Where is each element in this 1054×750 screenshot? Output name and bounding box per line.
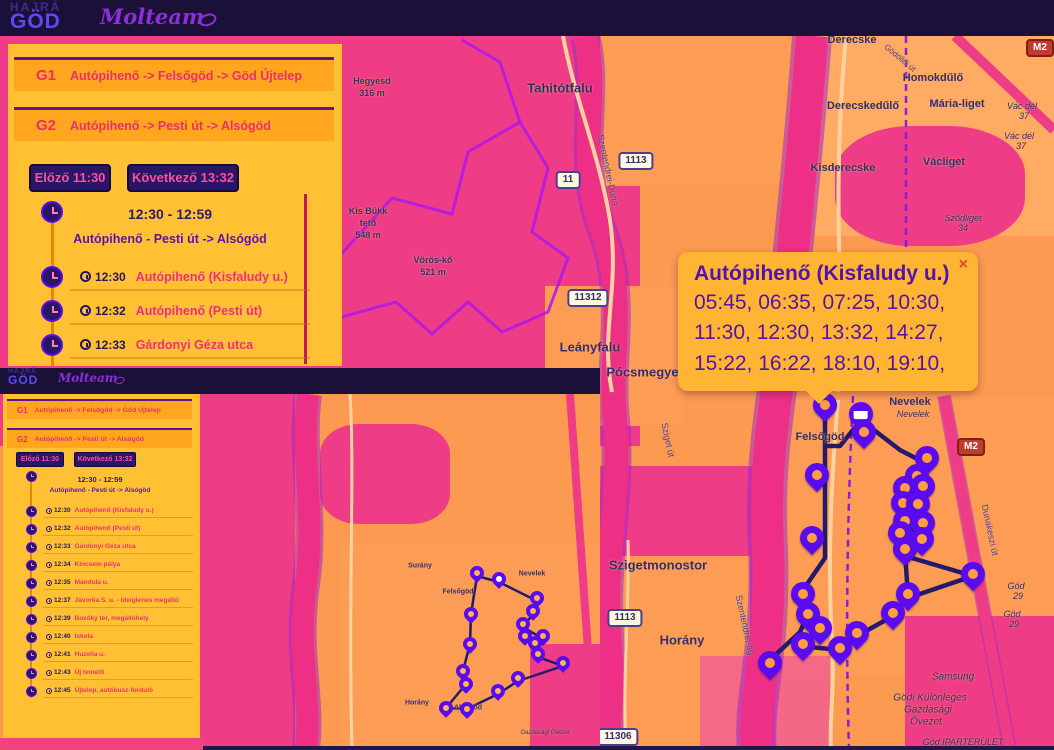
mini-stop-row[interactable]: 12:30 Autópihenő (Kisfaludy u.) <box>43 504 193 518</box>
clock-icon <box>46 526 52 532</box>
exit-label: Göd <box>1003 609 1020 619</box>
mini-stop-row[interactable]: 12:35 Mandula u. <box>43 576 193 590</box>
clock-icon <box>26 632 37 643</box>
clock-icon <box>41 266 63 288</box>
mini-route-card-g1[interactable]: G1 Autópihenő -> Felsőgöd -> Göd Újtelep <box>7 399 192 419</box>
clock-icon <box>26 686 37 697</box>
mini-map[interactable]: Surány Nevelek Felsőgöd Horány Alsógöd G… <box>200 394 600 750</box>
clock-icon <box>46 670 52 676</box>
town-label: Nevelek <box>897 409 930 419</box>
exit-label: Göd <box>1007 581 1024 591</box>
peak-label: Hegyesd <box>353 76 391 86</box>
stop-row[interactable]: 12:32 Autópihenő (Pesti út) <box>70 298 310 325</box>
town-label: Tahitótfalu <box>527 81 592 96</box>
road-shield: 11312 <box>567 289 608 307</box>
town-label: Leányfalu <box>560 340 621 355</box>
peak-elevation: 521 m <box>420 267 446 277</box>
stop-time: 12:35 <box>54 579 71 586</box>
town-label: Václiget <box>923 156 965 168</box>
mini-next-departure-button[interactable]: Következő 13:32 <box>74 452 136 467</box>
exit-number: 37 <box>1016 141 1026 151</box>
bus-icon <box>854 408 868 419</box>
mini-stop-row[interactable]: 12:45 Újtelep, autóbusz-forduló <box>43 684 193 698</box>
stop-name: Bozóky tér, megállóhely <box>75 615 149 622</box>
clock-icon <box>46 616 52 622</box>
mini-stop-row[interactable]: 12:37 Jávorka S. u. - ideiglenes megálló <box>43 594 193 608</box>
peak-label: Kis Bükk <box>349 206 388 216</box>
clock-icon <box>26 542 37 553</box>
logo-text-main: GÖD <box>8 374 38 386</box>
next-departure-button[interactable]: Következő 13:32 <box>127 164 239 192</box>
clock-icon <box>26 650 37 661</box>
clock-icon <box>46 508 52 514</box>
stop-time: 12:32 <box>95 304 126 318</box>
peak-label: Vörös-kő <box>413 255 452 265</box>
town-label: Derecske <box>828 36 877 46</box>
road-shield: 1113 <box>618 152 653 170</box>
mini-hajra-god-logo: HAJRÁ GÖD <box>8 368 38 386</box>
trip-time-range: 12:30 - 12:59 <box>77 475 122 484</box>
mini-molteam-logo: Molteam <box>58 371 124 385</box>
peak-elevation: 316 m <box>359 88 385 98</box>
town-label: Homokdűlő <box>903 72 964 84</box>
top-bar: HAJRÁ GÖD Molteam <box>0 0 1054 36</box>
mini-stop-row[interactable]: 12:41 Huzella u. <box>43 648 193 662</box>
mini-top-bar: HAJRÁ GÖD Molteam <box>0 368 600 394</box>
stop-name: Autópihenő (Pesti út) <box>136 304 262 318</box>
trip-time-range: 12:30 - 12:59 <box>128 206 212 222</box>
town-label: Szigetmonostor <box>609 558 707 573</box>
route-code: G1 <box>17 406 28 415</box>
town-label: Derecskedűlő <box>827 100 899 112</box>
stop-time: 12:41 <box>54 651 71 658</box>
mini-stop-row[interactable]: 12:33 Gárdonyi Géza utca <box>43 540 193 554</box>
stop-time: 12:39 <box>54 615 71 622</box>
town-label: Horány <box>405 700 429 707</box>
clock-icon <box>41 300 63 322</box>
stop-name: Új temető <box>75 669 105 676</box>
exit-label: Vác dél <box>1004 131 1034 141</box>
mini-route-sidebar: G1 Autópihenő -> Felsőgöd -> Göd Újtelep… <box>3 394 200 738</box>
stop-time: 12:33 <box>54 543 71 550</box>
clock-icon <box>26 506 37 517</box>
exit-label: Vác dél <box>1007 101 1037 111</box>
clock-icon <box>26 578 37 589</box>
previous-departure-button[interactable]: Előző 11:30 <box>29 164 111 192</box>
clock-icon <box>80 339 91 350</box>
motorway-shield: M2 <box>957 438 985 456</box>
town-label: Felsőgöd <box>442 589 473 596</box>
clock-icon <box>26 471 37 482</box>
stop-time: 12:43 <box>54 669 71 676</box>
stop-row[interactable]: 12:33 Gárdonyi Géza utca <box>70 332 310 359</box>
stop-time: 12:30 <box>54 507 71 514</box>
clock-icon <box>26 524 37 535</box>
clock-icon <box>46 598 52 604</box>
clock-icon <box>26 596 37 607</box>
stop-name: Kincsem pálya <box>75 561 121 568</box>
peak-elevation: 548 m <box>355 230 381 240</box>
screenshot-bottom-edge <box>203 746 1054 750</box>
popup-title: Autópihenő (Kisfaludy u.) <box>694 262 962 286</box>
brand-text: Molteam <box>58 371 118 385</box>
stop-name: Jávorka S. u. - ideiglenes megálló <box>75 597 179 604</box>
clock-icon <box>46 580 52 586</box>
town-label: Pócsmegyer <box>606 365 683 380</box>
mini-stop-row[interactable]: 12:40 Iskola <box>43 630 193 644</box>
town-label: Felsőgöd <box>796 431 845 443</box>
brand-text: Molteam <box>100 4 204 29</box>
mini-route-card-g2[interactable]: G2 Autópihenő -> Pesti út -> Alsógöd <box>7 428 192 448</box>
clock-icon <box>46 544 52 550</box>
stop-row[interactable]: 12:30 Autópihenő (Kisfaludy u.) <box>70 264 310 291</box>
stop-time: 12:32 <box>54 525 71 532</box>
stop-name: Autópihenő (Pesti út) <box>75 525 141 532</box>
stop-time: 12:45 <box>54 687 71 694</box>
stop-name: Gárdonyi Géza utca <box>136 338 253 352</box>
mini-stop-row[interactable]: 12:43 Új temető <box>43 666 193 680</box>
area-label: Samsung <box>932 672 974 683</box>
mini-previous-departure-button[interactable]: Előző 11:30 <box>16 452 64 467</box>
trip-name: Autópihenő - Pesti út -> Alsógöd <box>73 232 267 246</box>
mini-stop-row[interactable]: 12:39 Bozóky tér, megállóhely <box>43 612 193 626</box>
route-name: Autópihenő -> Pesti út -> Alsógöd <box>35 436 144 443</box>
logo-text-main: GÖD <box>10 11 61 32</box>
exit-label: Sződliget <box>944 213 981 223</box>
stop-name: Autópihenő (Kisfaludy u.) <box>136 270 288 284</box>
clock-icon <box>41 201 63 223</box>
road-shield: 1113 <box>607 609 642 627</box>
area-label: Övezet <box>910 717 942 728</box>
route-sidebar: G1 Autópihenő -> Felsőgöd -> Göd Újtelep… <box>8 44 342 366</box>
popup-departure-times: 05:45, 06:35, 07:25, 10:30, 11:30, 12:30… <box>694 288 962 379</box>
peak-label: tető <box>360 218 377 228</box>
area-label: Gödi Különleges <box>893 693 966 704</box>
clock-icon <box>26 668 37 679</box>
stop-name: Huzella u. <box>75 651 105 658</box>
exit-number: 29 <box>1009 619 1019 629</box>
town-label: Kisderecske <box>811 162 876 174</box>
town-label: Nevelek <box>889 396 931 408</box>
mini-stop-row[interactable]: 12:32 Autópihenő (Pesti út) <box>43 522 193 536</box>
area-label: Gazdasági Övezet <box>520 730 569 736</box>
stop-time: 12:30 <box>95 270 126 284</box>
clock-icon <box>46 562 52 568</box>
route-code: G2 <box>17 435 28 444</box>
close-icon[interactable]: × <box>959 256 968 274</box>
app-root: Tahitótfalu Hegyesd 316 m Kis Bükk tető … <box>0 0 1054 750</box>
exit-number: 34 <box>958 223 968 233</box>
route-name: Autópihenő -> Felsőgöd -> Göd Újtelep <box>35 407 161 414</box>
clock-icon <box>26 560 37 571</box>
area-label: Gazdasági <box>904 705 952 716</box>
route-card-g2[interactable]: G2 Autópihenő -> Pesti út -> Alsógöd <box>14 107 334 141</box>
route-code: G1 <box>36 67 56 84</box>
molteam-logo: Molteam <box>100 4 216 29</box>
stop-name: Mandula u. <box>75 579 109 586</box>
mini-panel-footer <box>0 738 205 750</box>
stop-time: 12:34 <box>54 561 71 568</box>
route-card-g1[interactable]: G1 Autópihenő -> Felsőgöd -> Göd Újtelep <box>14 57 334 91</box>
hajra-god-logo: HAJRÁ GÖD <box>10 1 61 32</box>
road-shield: 11 <box>556 171 581 189</box>
clock-icon <box>46 652 52 658</box>
motorway-shield: M2 <box>1026 39 1054 57</box>
stop-time: 12:37 <box>54 597 71 604</box>
clock-icon <box>46 634 52 640</box>
road-shield: 11306 <box>597 728 638 746</box>
town-label: Surány <box>408 563 432 570</box>
stop-name: Iskola <box>75 633 93 640</box>
clock-icon <box>80 305 91 316</box>
clock-icon <box>26 614 37 625</box>
town-label: Horány <box>660 633 705 648</box>
exit-number: 29 <box>1013 591 1023 601</box>
town-label: Nevelek <box>519 571 545 578</box>
route-name: Autópihenő -> Pesti út -> Alsógöd <box>70 119 271 133</box>
town-label: Mária-liget <box>929 98 984 110</box>
trip-name: Autópihenő - Pesti út -> Alsógöd <box>50 487 151 494</box>
clock-icon <box>46 688 52 694</box>
stop-time: 12:33 <box>95 338 126 352</box>
route-name: Autópihenő -> Felsőgöd -> Göd Újtelep <box>70 69 302 83</box>
exit-number: 37 <box>1019 111 1029 121</box>
mini-stop-row[interactable]: 12:34 Kincsem pálya <box>43 558 193 572</box>
route-code: G2 <box>36 117 56 134</box>
stop-name: Gárdonyi Géza utca <box>75 543 136 550</box>
stop-name: Autópihenő (Kisfaludy u.) <box>75 507 154 514</box>
stop-name: Újtelep, autóbusz-forduló <box>75 687 153 694</box>
stop-popup: × Autópihenő (Kisfaludy u.) 05:45, 06:35… <box>678 252 978 391</box>
clock-icon <box>41 334 63 356</box>
clock-icon <box>80 271 91 282</box>
stop-time: 12:40 <box>54 633 71 640</box>
